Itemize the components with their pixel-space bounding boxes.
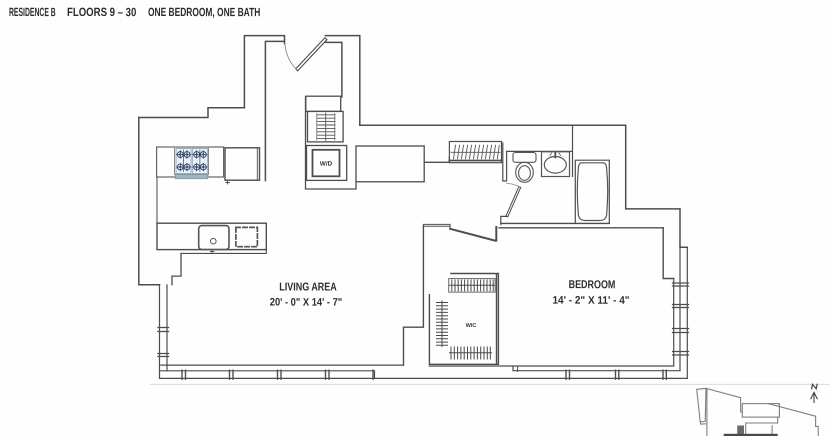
svg-text:WIC: WIC	[466, 323, 477, 329]
svg-text:20' - 0" X 14' - 7": 20' - 0" X 14' - 7"	[270, 297, 343, 309]
svg-text:BEDROOM: BEDROOM	[569, 279, 616, 291]
svg-text:LIVING AREA: LIVING AREA	[279, 282, 337, 294]
svg-text:W/D: W/D	[320, 161, 333, 168]
svg-text:14' - 2" X 11' - 4": 14' - 2" X 11' - 4"	[552, 294, 629, 307]
